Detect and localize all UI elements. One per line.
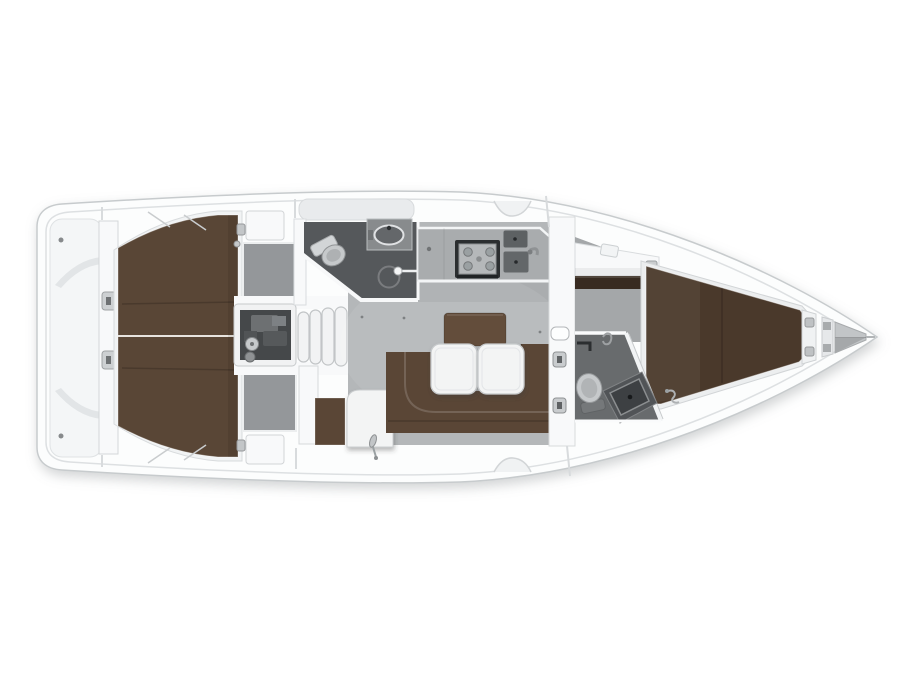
burner-knob	[476, 256, 482, 262]
faucet	[387, 226, 391, 230]
sliding-hatch	[299, 199, 414, 220]
hinge-slot	[557, 356, 562, 363]
engine-pulley	[245, 352, 255, 362]
step	[310, 310, 321, 364]
latch-slot	[106, 356, 111, 364]
saloon-table-right	[478, 344, 524, 394]
floorplan-canvas	[0, 0, 900, 675]
engine-compartment	[234, 304, 296, 366]
aft-cabin	[114, 211, 242, 461]
fore-deck-hatch	[600, 244, 619, 258]
stove	[455, 240, 500, 279]
sofa-backrest	[444, 313, 506, 346]
bulkhead-fitting	[805, 347, 814, 356]
cabinet-knob	[427, 247, 431, 251]
locker-top	[246, 211, 284, 240]
engine-filter-cap	[250, 342, 254, 346]
mast-fitting	[234, 241, 240, 247]
saloon-table-left	[431, 344, 477, 394]
nav-bench	[315, 398, 345, 445]
locker-latch	[237, 224, 245, 235]
deck-fitting	[59, 238, 64, 243]
transom-box	[50, 219, 102, 457]
deck-fitting	[59, 434, 64, 439]
shower-head	[394, 267, 402, 275]
hinge-slot	[557, 402, 562, 409]
hose-end	[665, 389, 669, 393]
stove-rail	[457, 275, 498, 279]
engine-part	[272, 316, 286, 326]
engine-part	[263, 331, 287, 346]
door-handle	[551, 327, 569, 340]
latch-slot	[106, 297, 111, 305]
gray-panel-bottom	[243, 373, 296, 431]
bulkhead-fitting	[805, 318, 814, 327]
galley	[418, 228, 549, 281]
vberth-sheen	[646, 266, 700, 404]
companionway	[298, 307, 347, 366]
locker-latch	[237, 440, 245, 451]
step	[322, 308, 334, 365]
divider-fitting	[823, 344, 831, 352]
gray-panel-top	[243, 243, 296, 302]
divider-fitting	[823, 322, 831, 330]
yacht-floorplan	[0, 0, 900, 675]
step	[298, 312, 309, 362]
washbasin	[367, 219, 412, 250]
stern-platform	[50, 219, 102, 457]
fwd-bulkhead	[549, 217, 575, 446]
locker-bottom	[246, 435, 284, 464]
